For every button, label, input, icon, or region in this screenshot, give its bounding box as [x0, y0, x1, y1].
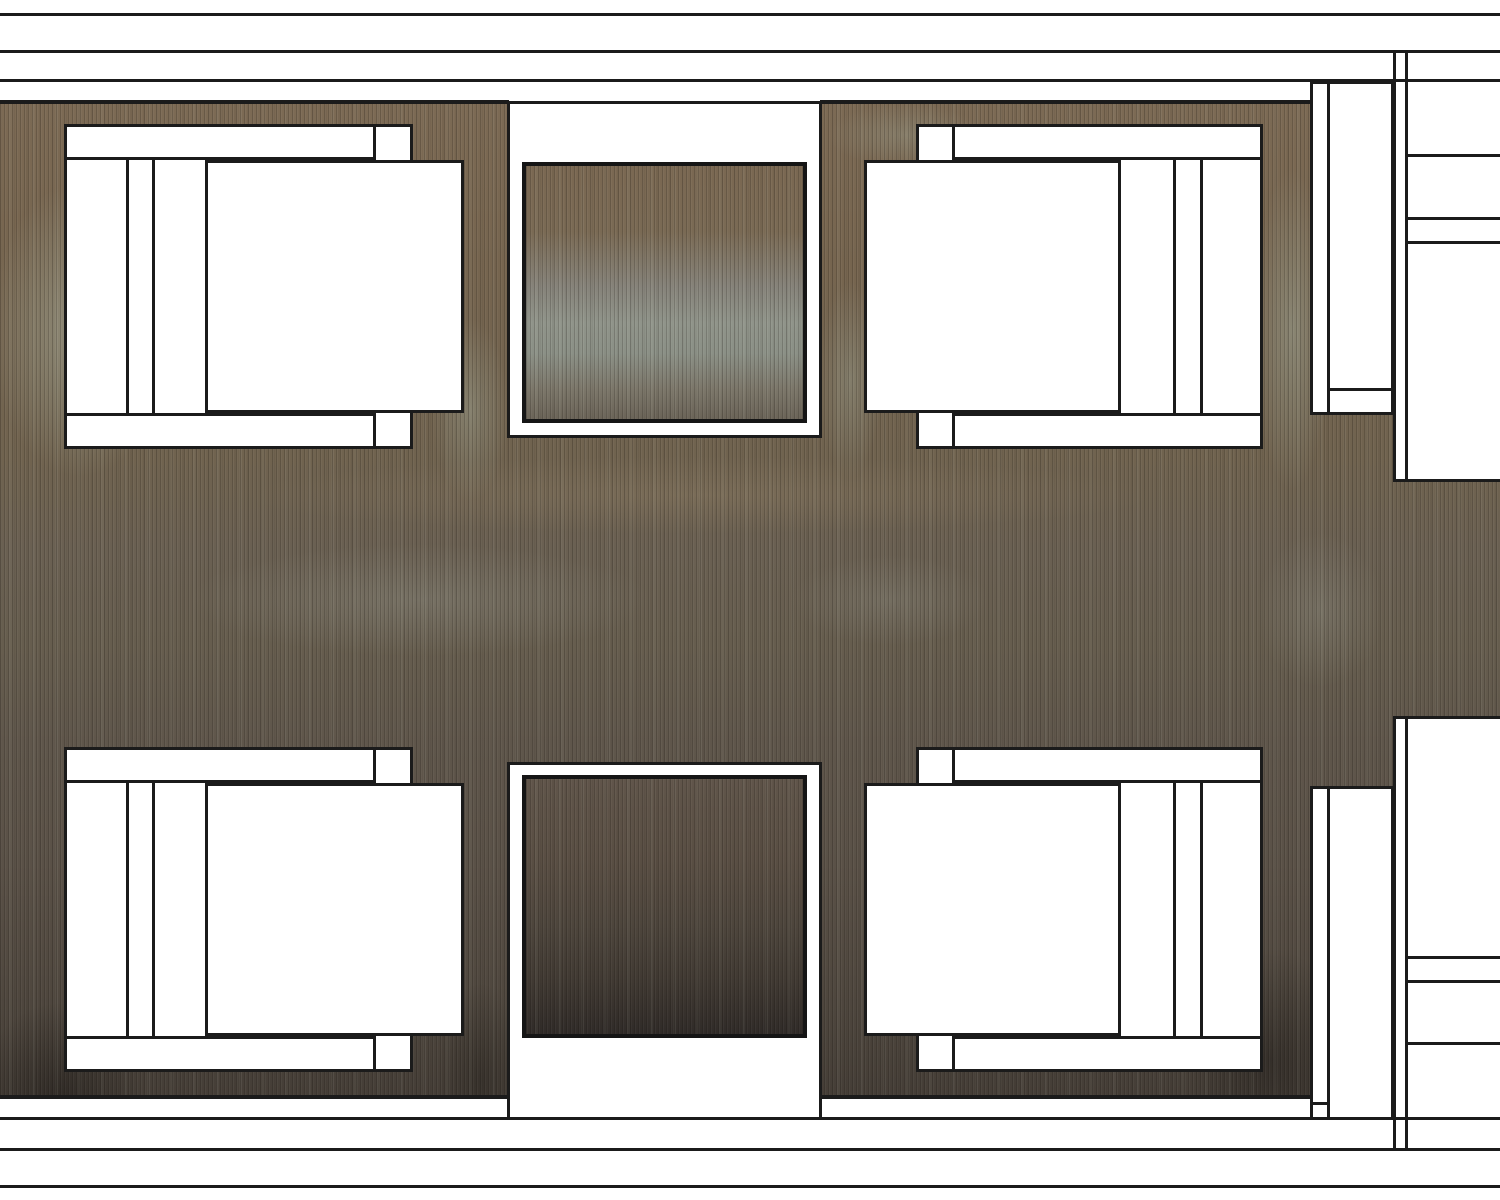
rug-edge-top-right	[820, 100, 1310, 104]
armchair-top-right-seat	[864, 160, 1121, 413]
partition-block-lower	[1310, 786, 1394, 1120]
armchair-bottom-right-back-line-2	[1200, 783, 1203, 1036]
armchair-bottom-left-back-line-2	[152, 783, 155, 1036]
armchair-top-right-armrest-a	[952, 124, 1263, 160]
partition-upper-vline	[1327, 81, 1330, 415]
armchair-top-right-armrest-b	[952, 413, 1263, 449]
wall-line-top-inner	[0, 79, 1500, 82]
rug-mid-edge-top	[1394, 479, 1500, 482]
armchair-bottom-right-armrest-b	[952, 1036, 1263, 1072]
wall-line-bottom-outer	[0, 1185, 1500, 1188]
right-panel-shelf-line-2	[1406, 217, 1500, 220]
armchair-top-left-back-line-1	[126, 160, 129, 413]
right-wall-lower-left-line	[1393, 716, 1396, 1151]
armchair-bottom-right-armrest-a	[952, 747, 1263, 783]
right-wall-upper-right-line	[1405, 50, 1408, 482]
floor-plan-drawing	[0, 0, 1500, 1200]
right-panel-shelf-line-4	[1406, 956, 1500, 959]
rug-mid-edge-bottom	[1394, 716, 1500, 719]
side-table-top-stripe-pattern	[526, 166, 803, 419]
armchair-bottom-left-armrest-a	[64, 747, 376, 783]
rug-edge-top-left	[0, 100, 509, 104]
right-wall-lower-right-line	[1405, 716, 1408, 1151]
armchair-top-left-armrest-a	[64, 124, 376, 160]
partition-lower-hline	[1310, 1102, 1330, 1105]
right-panel-shelf-line-6	[1406, 1042, 1500, 1045]
armchair-bottom-left-seat	[205, 783, 464, 1036]
wall-line-bottom-middle	[0, 1148, 1500, 1151]
rug-edge-bottom-right	[820, 1095, 1310, 1099]
partition-lower-vline	[1327, 786, 1330, 1120]
armchair-top-right-back-line-2	[1200, 160, 1203, 413]
side-table-bottom	[522, 775, 807, 1038]
partition-upper-hline	[1327, 388, 1394, 391]
right-wall-upper-left-line	[1393, 50, 1396, 482]
wall-line-top-middle	[0, 50, 1500, 53]
armchair-bottom-right-seat	[864, 783, 1121, 1036]
side-table-bottom-stripe-pattern	[526, 779, 803, 1034]
right-panel-shelf-line-5	[1406, 980, 1500, 983]
rug-edge-bottom-left	[0, 1095, 509, 1099]
armchair-bottom-right-back-line-1	[1173, 783, 1176, 1036]
armchair-top-left-armrest-b	[64, 413, 376, 449]
right-panel-shelf-line-1	[1406, 154, 1500, 157]
armchair-top-left-seat	[205, 160, 464, 413]
partition-block-upper	[1310, 81, 1394, 415]
right-panel-shelf-line-3	[1406, 241, 1500, 244]
side-table-top	[522, 162, 807, 423]
wall-line-top-outer	[0, 13, 1500, 16]
armchair-bottom-left-back-line-1	[126, 783, 129, 1036]
armchair-top-left-back-line-2	[152, 160, 155, 413]
armchair-bottom-left-armrest-b	[64, 1036, 376, 1072]
armchair-top-right-back-line-1	[1173, 160, 1176, 413]
